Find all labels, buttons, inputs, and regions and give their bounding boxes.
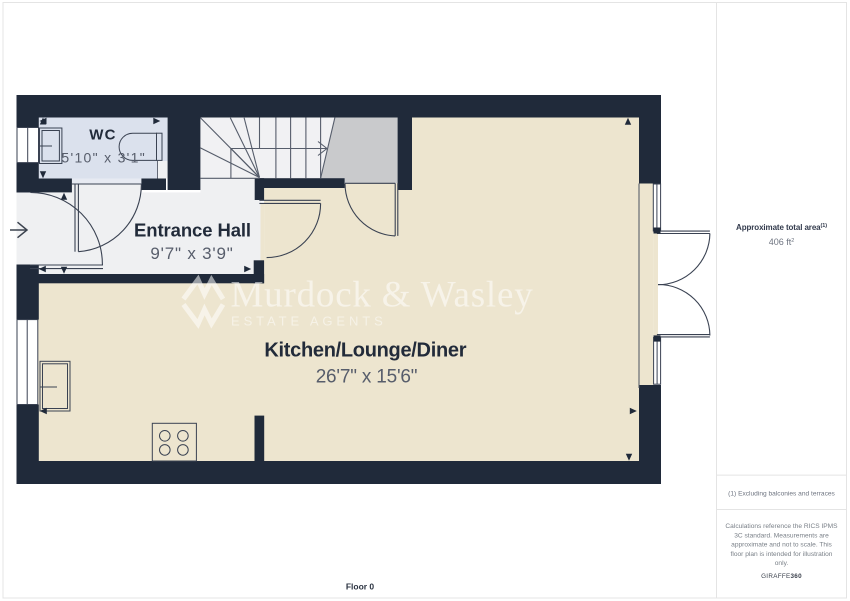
svg-text:406 ft2: 406 ft2	[769, 237, 795, 247]
svg-text:Approximate total area(1): Approximate total area(1)	[736, 223, 827, 233]
svg-text:Calculations reference the RIC: Calculations reference the RICS IPMS	[725, 523, 838, 530]
svg-text:Floor 0: Floor 0	[346, 582, 375, 592]
svg-text:floor plan is intended for ill: floor plan is intended for illustration	[731, 551, 833, 558]
svg-text:Entrance Hall: Entrance Hall	[134, 220, 251, 241]
svg-text:26'7" x 15'6": 26'7" x 15'6"	[316, 367, 418, 388]
svg-text:ESTATE AGENTS: ESTATE AGENTS	[231, 314, 387, 329]
svg-text:5'10" x 3'1": 5'10" x 3'1"	[61, 150, 146, 166]
svg-text:Kitchen/Lounge/Diner: Kitchen/Lounge/Diner	[264, 340, 466, 362]
svg-text:Murdock & Wasley: Murdock & Wasley	[230, 275, 533, 316]
svg-text:WC: WC	[89, 127, 116, 144]
svg-text:only.: only.	[775, 560, 789, 567]
svg-text:3C standard. Measurements are: 3C standard. Measurements are	[734, 532, 829, 539]
svg-text:9'7" x 3'9": 9'7" x 3'9"	[150, 244, 233, 263]
svg-text:GIRAFFE360: GIRAFFE360	[761, 573, 802, 580]
svg-text:(1) Excluding balconies and te: (1) Excluding balconies and terraces	[728, 491, 835, 498]
svg-text:approximate and not to scale.: approximate and not to scale. This	[731, 542, 832, 549]
